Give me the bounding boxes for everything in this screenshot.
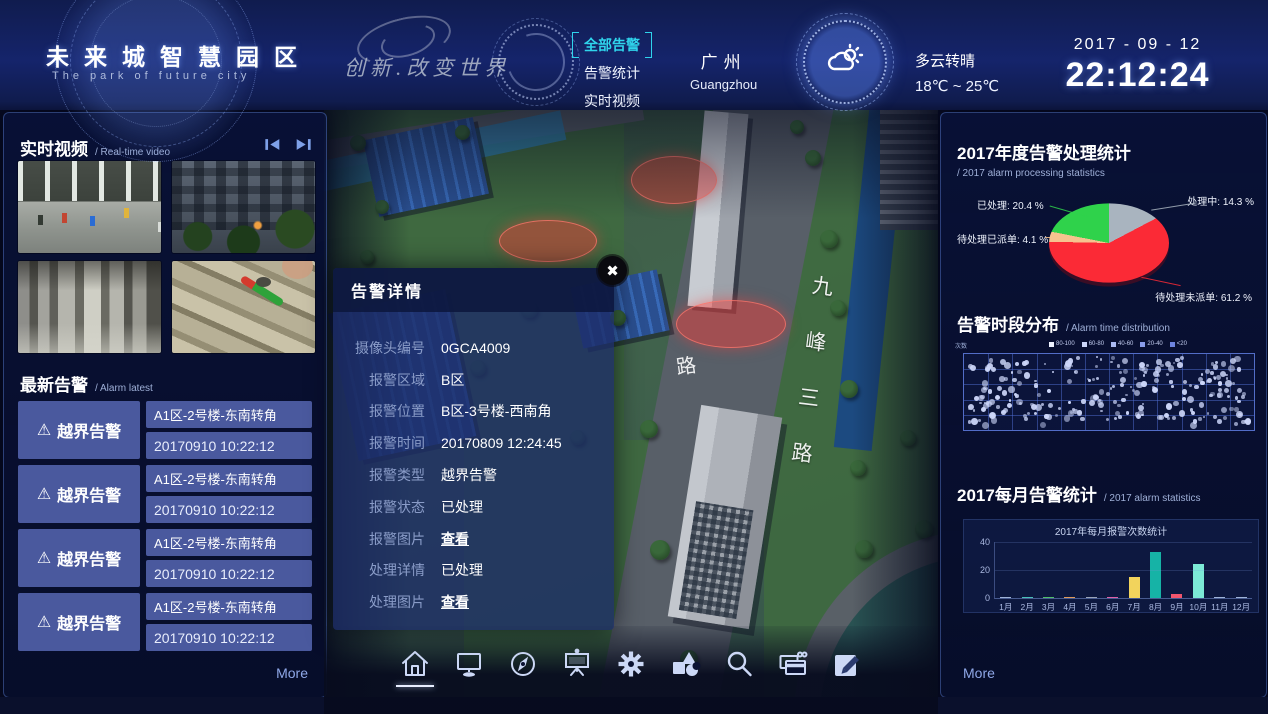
header-menu: 全部告警告警统计实时视频 [576, 34, 648, 112]
legend-item: 80-100 [1049, 341, 1075, 347]
field-value-link[interactable]: 查看 [441, 592, 469, 612]
map-tree [455, 125, 470, 140]
pie-slice-label: 待处理未派单: 61.2 % [1155, 289, 1252, 304]
pie-slice-label: 待处理已派单: 4.1 % [957, 231, 1048, 246]
alarm-location: A1区-2号楼-东南转角 [154, 405, 277, 424]
warning-icon: ⚠ [37, 484, 51, 504]
y-axis-tick: 0 [968, 593, 990, 603]
video-thumbnail[interactable] [172, 161, 315, 253]
emblem-ring-graphic [498, 24, 574, 100]
x-axis-tick: 3月 [1042, 601, 1055, 613]
x-axis-tick: 8月 [1149, 601, 1162, 613]
pie-section-title: 2017年度告警处理统计 [957, 139, 1131, 164]
home-icon[interactable] [398, 648, 432, 688]
screen-icon[interactable] [560, 648, 594, 688]
alarm-more-link[interactable]: More [276, 665, 308, 681]
field-label: 报警类型 [333, 465, 425, 485]
alarm-time-scatter-chart[interactable] [963, 353, 1255, 431]
bar [1043, 597, 1054, 599]
field-value: 20170809 12:24:45 [441, 435, 562, 451]
alarm-detail-modal: 告警详情 ✖ 摄像头编号0GCA4009报警区域B区报警位置B区-3号楼-西南角… [333, 268, 614, 630]
field-label: 报警区域 [333, 370, 425, 390]
brand-slogan: 创新.改变世界 [344, 52, 510, 82]
x-axis-tick: 9月 [1170, 601, 1183, 613]
x-axis-tick: 11月 [1211, 601, 1228, 613]
pie-slice-label: 处理中: 14.3 % [1187, 193, 1254, 208]
monitor-icon[interactable] [452, 648, 486, 688]
weather-temperature: 18℃ ~ 25℃ [915, 77, 999, 95]
x-axis-tick: 1月 [999, 601, 1012, 613]
modal-field-list: 摄像头编号0GCA4009报警区域B区报警位置B区-3号楼-西南角报警时间201… [333, 312, 614, 630]
map-tree [790, 120, 804, 134]
bar-section-subtitle: / 2017 alarm statistics [1104, 493, 1201, 504]
video-thumbnail[interactable] [18, 261, 161, 353]
pie-section-subtitle: / 2017 alarm processing statistics [957, 168, 1105, 179]
alarm-time: 20170910 10:22:12 [154, 566, 275, 582]
scatter-section-subtitle: / Alarm time distribution [1066, 323, 1170, 334]
field-label: 报警图片 [333, 529, 425, 549]
field-label: 摄像头编号 [333, 338, 425, 358]
legend-item: 60-80 [1082, 341, 1104, 347]
alarm-section-title: 最新告警 [20, 371, 88, 396]
bar-section-title: 2017每月告警统计 [957, 481, 1097, 506]
skip-next-icon[interactable] [294, 137, 312, 157]
field-value-link[interactable]: 查看 [441, 529, 469, 549]
bar-chart-inner-title: 2017年每月报警次数统计 [964, 523, 1258, 538]
legend-item: <20 [1170, 341, 1187, 347]
map-tree [375, 200, 389, 214]
map-tree [915, 520, 933, 538]
alarm-list-item[interactable]: ⚠越界告警A1区-2号楼-东南转角20170910 10:22:12 [18, 465, 312, 523]
map-tree [820, 230, 838, 248]
warning-icon: ⚠ [37, 612, 51, 632]
skip-previous-icon[interactable] [264, 137, 282, 157]
map-tree [360, 250, 374, 264]
stats-more-link[interactable]: More [963, 665, 995, 681]
field-value: 已处理 [441, 560, 483, 580]
gear-icon[interactable] [614, 648, 648, 688]
alarm-zone-marker[interactable] [499, 220, 597, 262]
left-panel: 实时视频 / Real-time video 最新告警 / Alarm late… [3, 112, 327, 698]
menu-item[interactable]: 告警统计 [576, 62, 648, 84]
legend-item: 20-40 [1140, 341, 1162, 347]
modal-field-row: 处理图片查看 [333, 586, 614, 618]
field-value: 已处理 [441, 497, 483, 517]
bar [1107, 597, 1118, 599]
shapes-icon[interactable] [668, 648, 702, 688]
alarm-location: A1区-2号楼-东南转角 [154, 597, 277, 616]
bar [1214, 597, 1225, 599]
x-axis-tick: 4月 [1063, 601, 1076, 613]
alarm-list-item[interactable]: ⚠越界告警A1区-2号楼-东南转角20170910 10:22:12 [18, 593, 312, 651]
weather-condition: 多云转晴 [915, 50, 999, 71]
alarm-section-subtitle: / Alarm latest [95, 383, 153, 394]
partly-cloudy-icon [824, 39, 866, 86]
video-section-title: 实时视频 [20, 135, 88, 160]
x-axis-tick: 2月 [1021, 601, 1034, 613]
close-icon[interactable]: ✖ [598, 256, 627, 285]
map-tree [350, 135, 366, 151]
map-tree [805, 150, 821, 166]
menu-item[interactable]: 全部告警 [576, 34, 648, 56]
alarm-time: 20170910 10:22:12 [154, 438, 275, 454]
alarm-location: A1区-2号楼-东南转角 [154, 533, 277, 552]
clock-display: 22:12:24 [1055, 56, 1220, 95]
modal-field-row: 摄像头编号0GCA4009 [333, 332, 614, 364]
modal-field-row: 报警图片查看 [333, 523, 614, 555]
modal-field-row: 报警位置B区-3号楼-西南角 [333, 396, 614, 428]
y-axis-tick: 20 [968, 565, 990, 575]
x-axis-tick: 5月 [1085, 601, 1098, 613]
bar [1171, 594, 1182, 598]
field-label: 处理图片 [333, 592, 425, 612]
modal-field-row: 报警状态已处理 [333, 491, 614, 523]
map-tree [830, 300, 846, 316]
app-title: 未来城智慧园区 [46, 38, 312, 72]
bar [1236, 597, 1247, 599]
map-tree [840, 380, 858, 398]
field-value: B区-3号楼-西南角 [441, 401, 551, 421]
bar [1000, 597, 1011, 599]
bottom-toolbar [324, 626, 938, 714]
cards-icon[interactable] [776, 648, 810, 688]
alarm-type-badge[interactable]: ⚠越界告警 [18, 593, 140, 651]
alarm-time: 20170910 10:22:12 [154, 502, 275, 518]
right-panel: 2017年度告警处理统计 / 2017 alarm processing sta… [940, 112, 1267, 698]
alarm-list-item[interactable]: ⚠越界告警A1区-2号楼-东南转角20170910 10:22:12 [18, 401, 312, 459]
map-tree [900, 430, 916, 446]
field-value: 越界告警 [441, 465, 497, 485]
alarm-list-item[interactable]: ⚠越界告警A1区-2号楼-东南转角20170910 10:22:12 [18, 529, 312, 587]
y-axis-tick: 40 [968, 537, 990, 547]
map-tree [640, 420, 658, 438]
alarm-zone-marker[interactable] [676, 300, 786, 348]
street-name-label: 路 [674, 349, 698, 381]
bar [1150, 552, 1161, 598]
field-label: 处理详情 [333, 560, 425, 580]
header-bar: 未来城智慧园区 The park of future city 创新.改变世界 … [0, 0, 1268, 110]
field-value: 0GCA4009 [441, 340, 510, 356]
city-name-en: Guangzhou [690, 77, 757, 92]
scatter-axis-note: 次数 [955, 341, 967, 350]
alarm-list: ⚠越界告警A1区-2号楼-东南转角20170910 10:22:12⚠越界告警A… [18, 401, 312, 651]
menu-item[interactable]: 实时视频 [576, 90, 648, 112]
monthly-alarm-bar-chart[interactable]: 2017年每月报警次数统计 1月2月3月4月5月6月7月8月9月10月11月12… [963, 519, 1259, 613]
map-tree [850, 460, 866, 476]
map-tree [650, 540, 670, 560]
scatter-legend: 80-10060-8040-6020-40<20 [1049, 341, 1187, 347]
city-name-zh: 广州 [690, 48, 757, 73]
x-axis-tick: 10月 [1189, 601, 1207, 613]
alarm-type-badge[interactable]: ⚠越界告警 [18, 529, 140, 587]
alarm-processing-pie-chart[interactable] [1049, 203, 1169, 282]
alarm-zone-marker[interactable] [631, 156, 717, 204]
field-label: 报警位置 [333, 401, 425, 421]
modal-field-row: 报警区域B区 [333, 364, 614, 396]
alarm-time: 20170910 10:22:12 [154, 630, 275, 646]
modal-title: 告警详情 [333, 268, 614, 312]
pie-slice-label: 已处理: 20.4 % [977, 197, 1044, 212]
edit-icon[interactable] [830, 648, 864, 688]
bar [1129, 577, 1140, 598]
x-axis-tick: 12月 [1232, 601, 1250, 613]
bar [1086, 597, 1097, 599]
date-display: 2017 - 09 - 12 [1055, 36, 1220, 54]
modal-field-row: 报警类型越界告警 [333, 459, 614, 491]
map-tree [855, 540, 873, 558]
warning-icon: ⚠ [37, 420, 51, 440]
x-axis-tick: 7月 [1128, 601, 1141, 613]
field-label: 报警状态 [333, 497, 425, 517]
field-value: B区 [441, 370, 464, 390]
alarm-type-badge[interactable]: ⚠越界告警 [18, 401, 140, 459]
search-icon[interactable] [722, 648, 756, 688]
alarm-location: A1区-2号楼-东南转角 [154, 469, 277, 488]
modal-field-row: 报警时间20170809 12:24:45 [333, 427, 614, 459]
bar [1022, 597, 1033, 599]
weather-widget[interactable] [803, 20, 887, 104]
compass-icon[interactable] [506, 648, 540, 688]
field-label: 报警时间 [333, 433, 425, 453]
app-subtitle: The park of future city [52, 70, 250, 82]
modal-field-row: 处理详情已处理 [333, 555, 614, 587]
x-axis-tick: 6月 [1106, 601, 1119, 613]
video-thumbnail[interactable] [172, 261, 315, 353]
map-building [880, 110, 938, 230]
bar [1064, 597, 1075, 599]
scatter-section-title: 告警时段分布 [957, 311, 1059, 336]
legend-item: 40-60 [1111, 341, 1133, 347]
video-thumbnail[interactable] [18, 161, 161, 253]
alarm-type-badge[interactable]: ⚠越界告警 [18, 465, 140, 523]
warning-icon: ⚠ [37, 548, 51, 568]
